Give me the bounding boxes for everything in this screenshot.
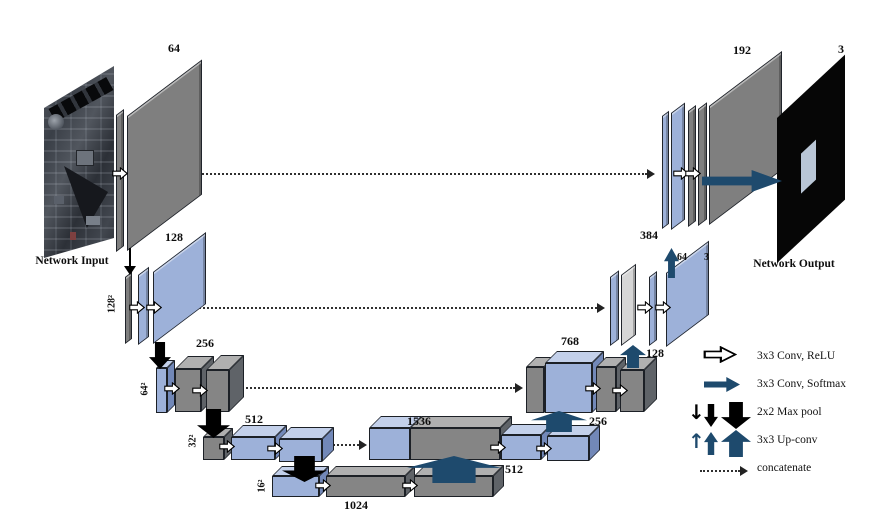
dec1-box: [547, 436, 589, 461]
input-image-detail: [76, 150, 94, 166]
skip-arrowhead-icon: [647, 169, 655, 179]
enc4-channels-label: 512: [245, 412, 263, 427]
dec3-plate: [621, 264, 636, 346]
conv-relu-arrow-icon: [585, 382, 601, 395]
dec1-concat-box: [410, 428, 500, 460]
skip-arrowhead-icon: [515, 383, 523, 393]
legend-concatenate-arrow-icon: [700, 470, 740, 472]
dec1-concat-box: [369, 428, 410, 460]
conv-relu-arrow-icon: [536, 442, 552, 455]
conv-relu-arrow-icon: [612, 384, 628, 397]
skip-connection-2: [167, 307, 597, 309]
conv-relu-arrow-icon: [402, 479, 418, 492]
dec3-concat-label: 384: [640, 228, 658, 243]
conv-relu-arrow-icon: [315, 479, 331, 492]
enc5-box: [272, 476, 319, 497]
legend-maxpool-label: 2x2 Max pool: [757, 406, 822, 418]
dec2-concat-label: 768: [561, 334, 579, 349]
network-input-image: [42, 66, 115, 260]
dec3-out-channels-label: 3: [704, 252, 709, 263]
conv-relu-arrow-icon: [129, 301, 145, 314]
input-image-detail: [70, 232, 76, 240]
conv-relu-arrow-icon: [146, 301, 162, 314]
skip-arrowhead-icon: [359, 440, 367, 450]
skip-arrowhead-icon: [597, 303, 605, 313]
legend-concatenate-label: concatenate: [757, 462, 811, 474]
legend-conv-relu-label: 3x3 Conv, ReLU: [757, 350, 835, 362]
conv-relu-arrow-icon: [490, 441, 506, 454]
network-output-label: Network Output: [746, 257, 842, 272]
enc1-channels-label: 64: [168, 41, 180, 56]
conv-relu-arrow-icon: [267, 442, 283, 455]
conv-relu-arrow-icon: [655, 301, 671, 314]
upconv1-channels-label: 512: [505, 462, 523, 477]
enc2-size-label: 128²: [107, 295, 118, 313]
legend-upconv-large-arrow-icon: [721, 430, 751, 457]
input-image-detail: [54, 196, 64, 204]
legend-concatenate-arrowhead-icon: [740, 466, 748, 476]
legend-conv-softmax-label: 3x3 Conv, Softmax: [757, 378, 846, 390]
legend-conv-softmax-arrow-icon: [704, 377, 740, 392]
enc3-size-label: 64²: [140, 383, 151, 396]
legend-maxpool-large-arrow-icon: [721, 402, 751, 429]
dec3-plate: [610, 270, 619, 346]
maxpool-arrowhead-icon: [124, 266, 136, 275]
dec2-concat-box: [526, 367, 544, 413]
enc5-box: [326, 476, 405, 497]
enc3-channels-label: 256: [196, 336, 214, 351]
conv-relu-arrow-icon: [164, 382, 180, 395]
enc2-channels-label: 128: [165, 230, 183, 245]
enc2-plate: [153, 232, 206, 344]
skip-connection-3: [227, 387, 515, 389]
output-channels-label: 3: [838, 42, 844, 57]
enc4-size-label: 32²: [188, 435, 199, 448]
skip-connection-1: [135, 173, 647, 175]
input-image-detail: [86, 216, 100, 225]
legend-upconv-small-arrow-icon: [704, 432, 718, 455]
maxpool-arrow-1: [129, 248, 131, 267]
network-output-image: [777, 55, 845, 263]
dec4-plate: [709, 51, 782, 225]
segmentation-region: [801, 140, 816, 194]
unet-architecture-diagram: Network Input 64 128 128² 256 64² 512 32…: [0, 0, 888, 529]
enc1-plate: [127, 59, 202, 251]
enc5-size-label: 16²: [257, 480, 268, 493]
legend-maxpool-small-arrow-icon: [704, 404, 718, 427]
enc5-channels-label: 1024: [344, 498, 368, 513]
enc3-box: [206, 370, 229, 412]
conv-relu-arrow-icon: [685, 167, 701, 180]
legend-upconv-label: 3x3 Up-conv: [757, 434, 817, 446]
legend-conv-relu-arrow-icon: [703, 346, 737, 363]
conv-relu-arrow-icon: [192, 384, 208, 397]
conv-relu-arrow-icon: [637, 301, 653, 314]
dec1-concat-label: 1536: [407, 414, 431, 429]
input-image-detail: [48, 114, 64, 130]
conv-relu-arrow-icon: [112, 167, 128, 180]
legend-maxpool-thin-arrow-icon: ↓: [688, 402, 705, 422]
conv-relu-arrow-icon: [219, 440, 235, 453]
dec4-plate: [698, 102, 707, 226]
dec4-plate: [688, 105, 696, 227]
dec4-concat-label: 192: [733, 43, 751, 58]
upconv3-channels-label: 128: [646, 346, 664, 361]
dec4-plate: [662, 111, 669, 229]
dec3-conv-channels-label: 64: [677, 252, 687, 263]
legend-upconv-thin-arrow-icon: ↑: [688, 431, 705, 451]
network-input-label: Network Input: [28, 254, 116, 269]
dec1-box: [501, 435, 541, 460]
upconv2-channels-label: 256: [589, 414, 607, 429]
enc1-plate: [116, 109, 124, 252]
